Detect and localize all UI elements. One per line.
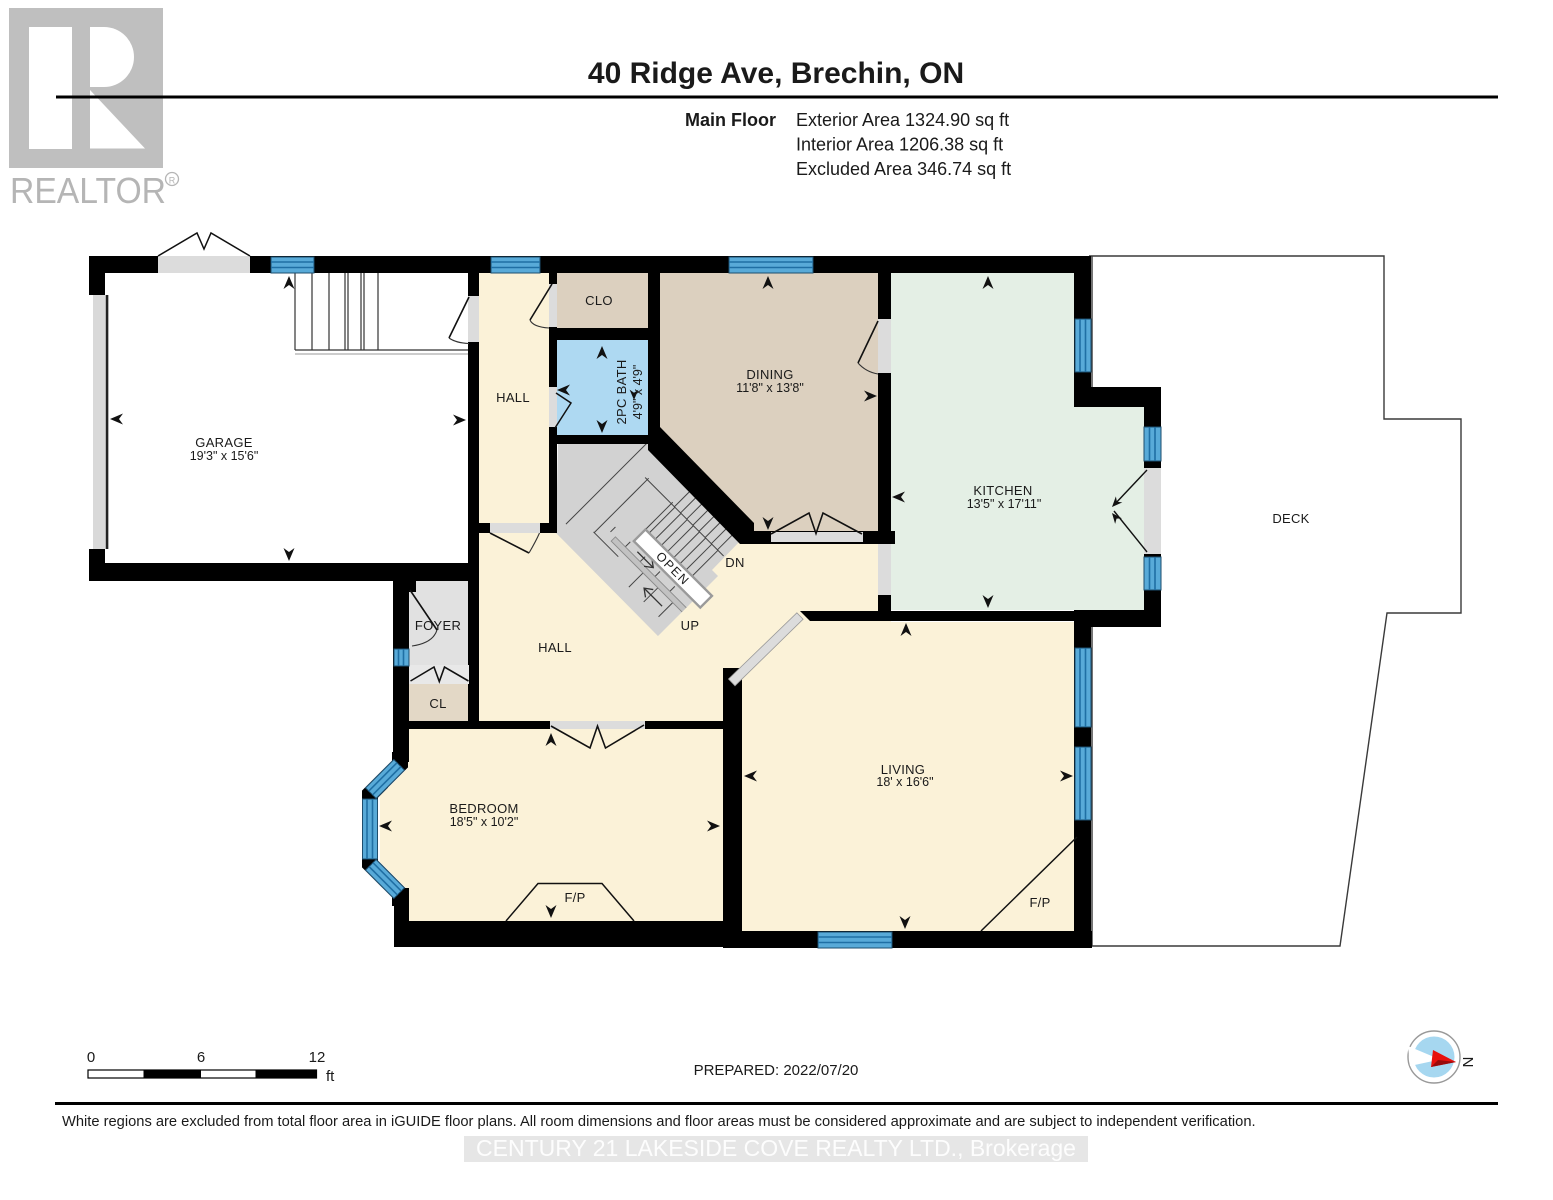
svg-text:FOYER: FOYER [415, 618, 461, 633]
svg-text:DECK: DECK [1272, 511, 1309, 526]
svg-text:18'5" x 10'2": 18'5" x 10'2" [450, 815, 519, 829]
svg-text:Main Floor: Main Floor [685, 110, 776, 130]
svg-text:6: 6 [197, 1049, 205, 1066]
svg-text:White regions are excluded fro: White regions are excluded from total fl… [62, 1114, 1256, 1130]
svg-text:BEDROOM: BEDROOM [449, 801, 518, 816]
svg-text:11'8" x 13'8": 11'8" x 13'8" [736, 381, 804, 395]
svg-text:19'3" x 15'6": 19'3" x 15'6" [190, 449, 259, 463]
svg-text:ft: ft [326, 1068, 335, 1085]
svg-text:F/P: F/P [1029, 895, 1050, 910]
svg-text:CLO: CLO [585, 293, 613, 308]
svg-text:N: N [1459, 1057, 1476, 1068]
svg-text:Exterior Area 1324.90 sq ft: Exterior Area 1324.90 sq ft [796, 110, 1009, 130]
svg-text:R: R [169, 176, 176, 186]
svg-text:REALTOR: REALTOR [10, 170, 166, 211]
svg-text:CENTURY 21 LAKESIDE COVE REALT: CENTURY 21 LAKESIDE COVE REALTY LTD., Br… [476, 1135, 1076, 1161]
svg-text:HALL: HALL [538, 640, 572, 655]
svg-text:PREPARED: 2022/07/20: PREPARED: 2022/07/20 [694, 1062, 859, 1079]
svg-text:13'5" x 17'11": 13'5" x 17'11" [967, 497, 1042, 511]
svg-text:CL: CL [429, 696, 446, 711]
svg-text:Excluded Area 346.74 sq ft: Excluded Area 346.74 sq ft [796, 159, 1011, 179]
svg-text:4'9" x 4'9": 4'9" x 4'9" [631, 365, 645, 420]
svg-text:DINING: DINING [746, 367, 793, 382]
svg-text:2PC BATH: 2PC BATH [614, 359, 629, 424]
svg-text:HALL: HALL [496, 390, 530, 405]
svg-text:40 Ridge Ave, Brechin, ON: 40 Ridge Ave, Brechin, ON [588, 57, 964, 90]
svg-text:12: 12 [309, 1049, 326, 1066]
svg-text:0: 0 [87, 1049, 95, 1066]
svg-text:DN: DN [725, 555, 744, 570]
svg-text:18' x 16'6": 18' x 16'6" [876, 775, 933, 789]
svg-text:F/P: F/P [564, 890, 585, 905]
svg-text:KITCHEN: KITCHEN [973, 483, 1032, 498]
svg-text:GARAGE: GARAGE [195, 435, 252, 450]
svg-text:Interior Area 1206.38 sq ft: Interior Area 1206.38 sq ft [796, 135, 1003, 155]
svg-text:UP: UP [681, 618, 700, 633]
